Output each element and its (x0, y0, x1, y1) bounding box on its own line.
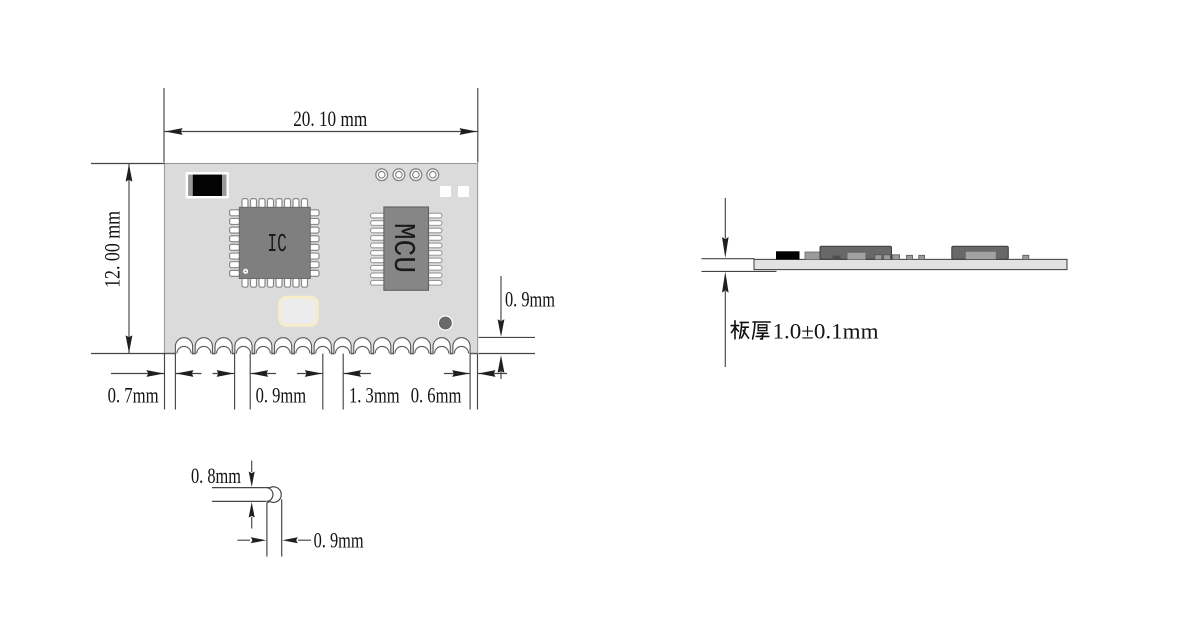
svg-text:0. 6mm: 0. 6mm (411, 383, 462, 408)
svg-text:IC: IC (267, 229, 287, 259)
svg-text:1.0±0.1mm: 1.0±0.1mm (773, 319, 879, 344)
svg-text:1. 3mm: 1. 3mm (349, 383, 400, 408)
svg-text:0. 9mm: 0. 9mm (505, 287, 555, 312)
svg-text:0. 7mm: 0. 7mm (108, 383, 159, 408)
svg-text:0. 9mm: 0. 9mm (256, 383, 307, 408)
svg-text:MCU: MCU (385, 223, 419, 273)
svg-text:0. 8mm: 0. 8mm (191, 463, 241, 488)
svg-text:0. 9mm: 0. 9mm (314, 528, 364, 553)
svg-text:12. 00 mm: 12. 00 mm (99, 211, 124, 288)
svg-text:20. 10 mm: 20. 10 mm (293, 106, 367, 131)
